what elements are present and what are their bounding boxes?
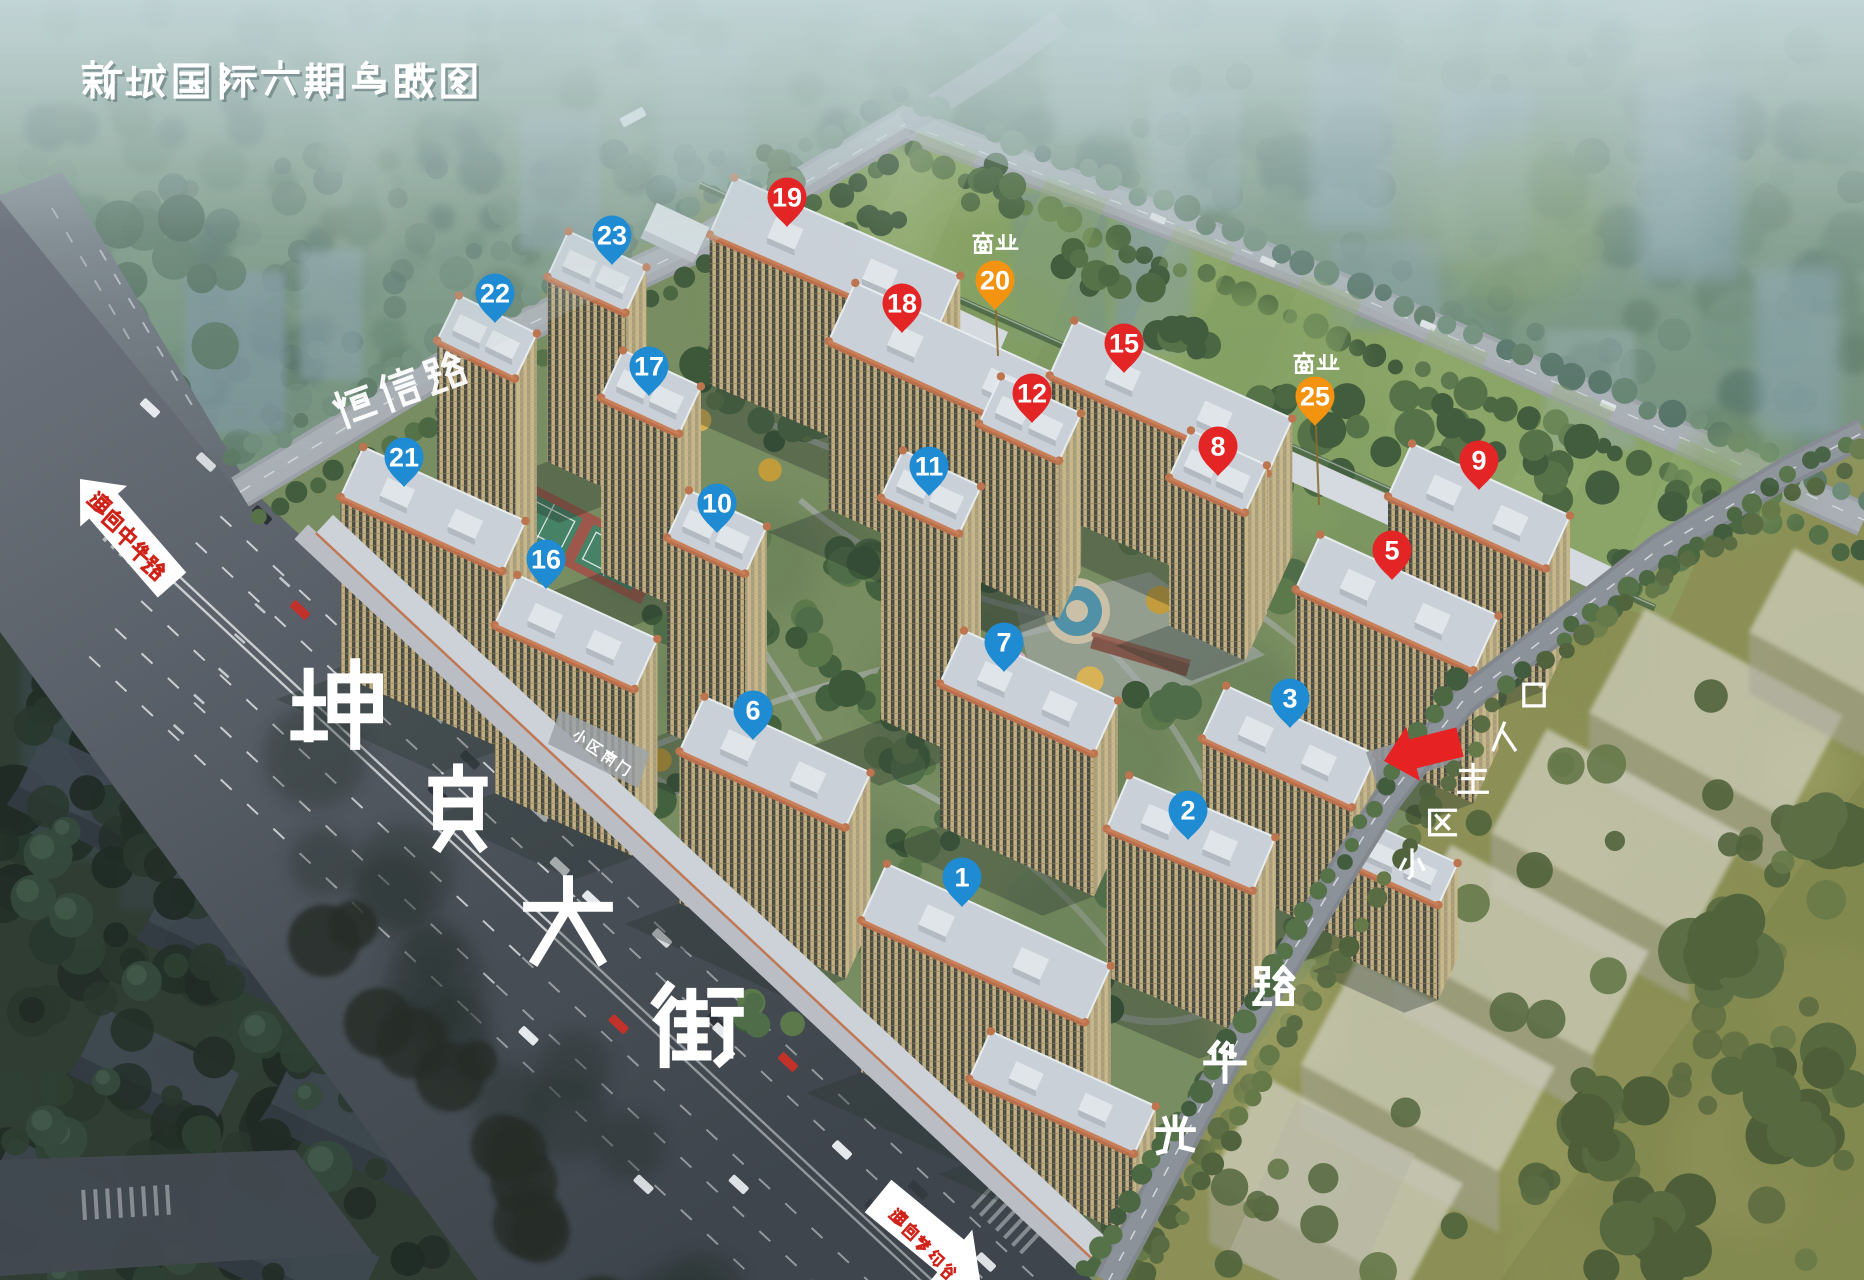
svg-text:16: 16 <box>531 545 561 575</box>
svg-text:3: 3 <box>1282 684 1297 714</box>
svg-text:19: 19 <box>772 183 802 213</box>
svg-text:23: 23 <box>597 221 627 251</box>
svg-text:9: 9 <box>1471 446 1486 476</box>
svg-text:17: 17 <box>634 352 664 382</box>
svg-text:11: 11 <box>915 452 944 482</box>
svg-text:10: 10 <box>702 489 732 519</box>
svg-text:18: 18 <box>887 289 917 319</box>
svg-text:5: 5 <box>1384 536 1399 566</box>
svg-text:7: 7 <box>996 628 1011 658</box>
svg-text:22: 22 <box>480 279 510 309</box>
svg-text:15: 15 <box>1109 329 1139 359</box>
svg-text:20: 20 <box>980 266 1010 296</box>
svg-text:2: 2 <box>1180 796 1195 826</box>
svg-text:8: 8 <box>1210 432 1225 462</box>
svg-text:12: 12 <box>1017 379 1047 409</box>
svg-text:21: 21 <box>389 443 419 473</box>
svg-text:6: 6 <box>745 696 760 726</box>
svg-text:1: 1 <box>954 863 969 893</box>
svg-text:25: 25 <box>1300 382 1330 412</box>
